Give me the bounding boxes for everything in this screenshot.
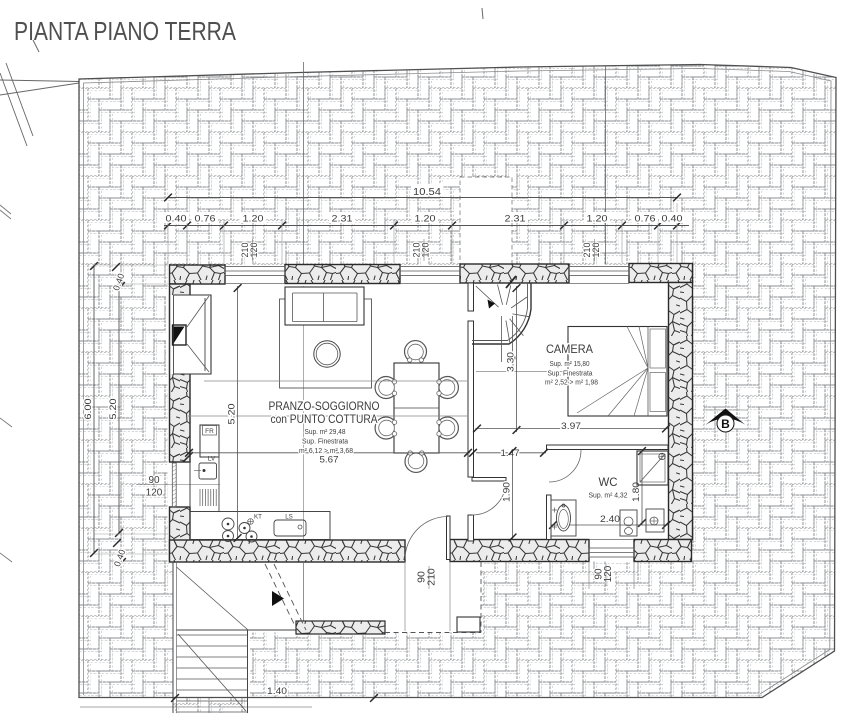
svg-text:1.20: 1.20: [587, 214, 608, 225]
svg-text:0.76: 0.76: [635, 214, 656, 225]
svg-text:120: 120: [146, 488, 163, 499]
svg-text:1.40: 1.40: [267, 686, 287, 697]
svg-text:0.40: 0.40: [662, 214, 683, 225]
svg-text:Sup. m² 4,32: Sup. m² 4,32: [589, 493, 628, 500]
svg-text:LS: LS: [285, 514, 293, 521]
svg-text:PIANTA PIANO TERRA: PIANTA PIANO TERRA: [14, 16, 237, 46]
svg-text:1.20: 1.20: [243, 214, 264, 225]
svg-text:Sup. m² 15,80: Sup. m² 15,80: [550, 361, 590, 368]
svg-text:2.40: 2.40: [600, 514, 620, 525]
svg-text:Sup. Finestrata: Sup. Finestrata: [548, 371, 593, 378]
svg-text:3.30: 3.30: [506, 352, 517, 372]
svg-text:210: 210: [426, 568, 438, 586]
svg-text:120: 120: [591, 242, 601, 257]
svg-text:m² 2,52 > m² 1,98: m² 2,52 > m² 1,98: [545, 380, 598, 387]
svg-text:Sup. m² 29,48: Sup. m² 29,48: [305, 427, 346, 436]
svg-text:120: 120: [603, 565, 614, 582]
svg-text:5.67: 5.67: [320, 455, 339, 466]
svg-text:1.20: 1.20: [415, 214, 436, 225]
svg-text:6.00: 6.00: [83, 399, 94, 420]
svg-text:Sup. Finestrata: Sup. Finestrata: [302, 437, 349, 446]
svg-text:10.54: 10.54: [413, 187, 441, 198]
svg-text:5.20: 5.20: [108, 399, 119, 420]
svg-text:2.31: 2.31: [505, 214, 526, 225]
svg-text:con PUNTO COTTURA: con PUNTO COTTURA: [271, 412, 379, 426]
svg-text:5.20: 5.20: [227, 404, 238, 425]
svg-text:0.40: 0.40: [166, 214, 187, 225]
svg-text:KT: KT: [254, 514, 262, 521]
svg-text:3.97: 3.97: [561, 421, 581, 432]
svg-text:2.31: 2.31: [332, 214, 353, 225]
svg-text:1.90: 1.90: [502, 482, 513, 502]
svg-text:PRANZO-SOGGIORNO: PRANZO-SOGGIORNO: [269, 399, 380, 413]
svg-text:LV: LV: [208, 456, 216, 463]
svg-text:CAMERA: CAMERA: [546, 344, 593, 356]
svg-text:0.76: 0.76: [195, 214, 216, 225]
svg-text:WC: WC: [599, 475, 618, 489]
svg-text:120: 120: [421, 242, 431, 257]
svg-text:B: B: [721, 417, 730, 431]
svg-text:FR: FR: [205, 428, 214, 435]
svg-text:120: 120: [249, 242, 259, 257]
